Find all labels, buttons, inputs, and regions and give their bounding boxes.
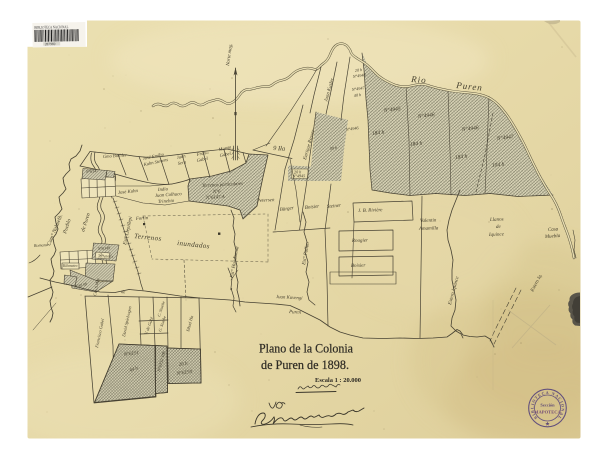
svg-text:Terreno 1a: Terreno 1a — [98, 255, 114, 259]
svg-text:9 Ila: 9 Ila — [273, 145, 285, 153]
svg-text:N°6: N°6 — [212, 190, 221, 195]
svg-text:Romana: Romana — [33, 242, 48, 248]
svg-text:N°6147 A: N°6147 A — [205, 195, 225, 201]
svg-text:184 h: 184 h — [371, 129, 384, 137]
svg-text:de: de — [121, 289, 126, 294]
svg-text:N°6149: N°6149 — [97, 245, 111, 251]
svg-text:Fortin: Fortin — [135, 216, 149, 222]
svg-text:N°6147: N°6147 — [85, 168, 100, 174]
svg-text:Casa: Casa — [548, 227, 559, 233]
svg-text:287969: 287969 — [45, 42, 56, 46]
svg-text:184 h: 184 h — [454, 153, 467, 161]
svg-text:BIBLIOTECA NACIONAL: BIBLIOTECA NACIONAL — [34, 24, 68, 30]
svg-text:de Puren de 1898.: de Puren de 1898. — [261, 357, 349, 372]
svg-text:Petersen: Petersen — [256, 198, 275, 204]
svg-text:Sección: Sección — [540, 403, 555, 408]
svg-text:Puren: Puren — [288, 310, 302, 316]
svg-text:Plano de la Colonia: Plano de la Colonia — [259, 341, 353, 356]
svg-text:184 h: 184 h — [409, 140, 422, 148]
svg-text:Boisier: Boisier — [351, 263, 366, 269]
svg-text:J. B. Rivière: J. B. Rivière — [358, 208, 383, 214]
svg-text:40 h: 40 h — [353, 92, 361, 98]
svg-text:Llanos: Llanos — [489, 218, 504, 224]
svg-text:Rougier: Rougier — [351, 238, 368, 244]
svg-text:Valentin: Valentin — [420, 218, 437, 224]
svg-text:Escala 1 : 20.000: Escala 1 : 20.000 — [315, 377, 362, 384]
svg-text:N°4945: N°4945 — [291, 173, 305, 178]
svg-text:104 h: 104 h — [491, 161, 504, 169]
svg-text:Iquince: Iquince — [488, 232, 505, 238]
svg-text:MAPOTECA: MAPOTECA — [534, 410, 561, 415]
svg-text:Rio: Rio — [410, 74, 427, 85]
svg-text:Amamilla: Amamilla — [418, 226, 439, 232]
svg-text:59 h: 59 h — [329, 145, 337, 151]
svg-text:Kilometro: Kilometro — [62, 264, 78, 268]
